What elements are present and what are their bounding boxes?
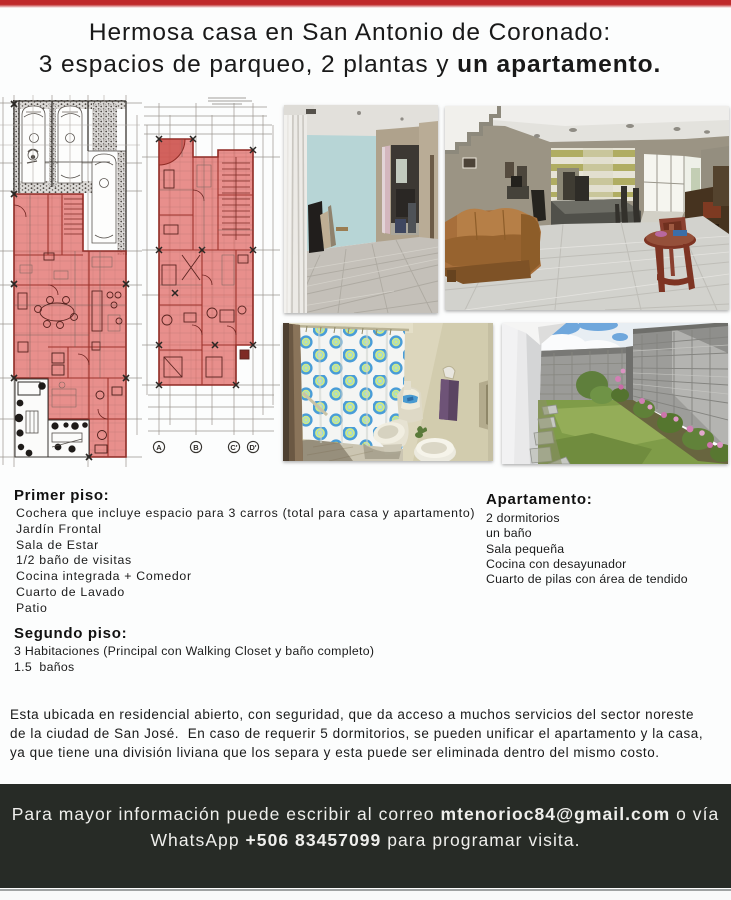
svg-text:B: B: [193, 443, 199, 452]
svg-text:C': C': [230, 443, 237, 452]
svg-text:A: A: [156, 443, 162, 452]
svg-text:D': D': [249, 443, 256, 452]
